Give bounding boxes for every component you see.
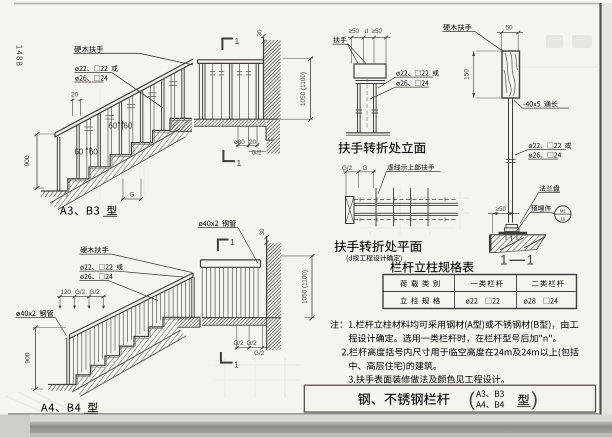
svg-text:1: 1 (500, 253, 508, 268)
svg-text:≥50: ≥50 (349, 28, 360, 35)
svg-text:60: 60 (75, 148, 84, 157)
svg-text:M1: M1 (560, 209, 567, 214)
svg-text:900: 900 (25, 352, 32, 364)
svg-text:(: ( (469, 390, 476, 411)
svg-text:G/2: G/2 (234, 340, 245, 347)
svg-text:): ) (532, 390, 538, 411)
svg-text:1488: 1488 (15, 45, 24, 67)
svg-text:G/2: G/2 (252, 150, 263, 157)
svg-text:1: 1 (234, 360, 239, 370)
svg-text:1: 1 (527, 253, 535, 268)
svg-text:30: 30 (257, 29, 264, 37)
svg-text:G/2: G/2 (254, 350, 265, 357)
svg-text:20: 20 (249, 139, 256, 146)
svg-text:20: 20 (71, 92, 79, 99)
svg-text:ø80: ø80 (234, 139, 245, 146)
svg-text:≥50: ≥50 (496, 206, 507, 213)
svg-text:150: 150 (464, 69, 471, 80)
svg-text:d: d (365, 28, 369, 35)
svg-text:10: 10 (560, 216, 565, 221)
svg-text:60: 60 (109, 122, 118, 131)
svg-text:1050 (1100): 1050 (1100) (300, 72, 307, 106)
svg-text:≥50: ≥50 (372, 28, 383, 35)
svg-text:50: 50 (506, 25, 514, 32)
svg-text:1050 (1100): 1050 (1100) (302, 270, 309, 304)
svg-text:30: 30 (259, 228, 266, 236)
svg-text:1: 1 (237, 158, 242, 168)
svg-text:1: 1 (230, 237, 235, 247)
svg-text:900: 900 (24, 155, 31, 167)
svg-text:G: G (130, 192, 135, 199)
svg-text:1: 1 (235, 36, 240, 46)
svg-text:G/2: G/2 (247, 340, 258, 347)
svg-text:60: 60 (124, 122, 133, 131)
svg-text:G: G (363, 165, 368, 172)
